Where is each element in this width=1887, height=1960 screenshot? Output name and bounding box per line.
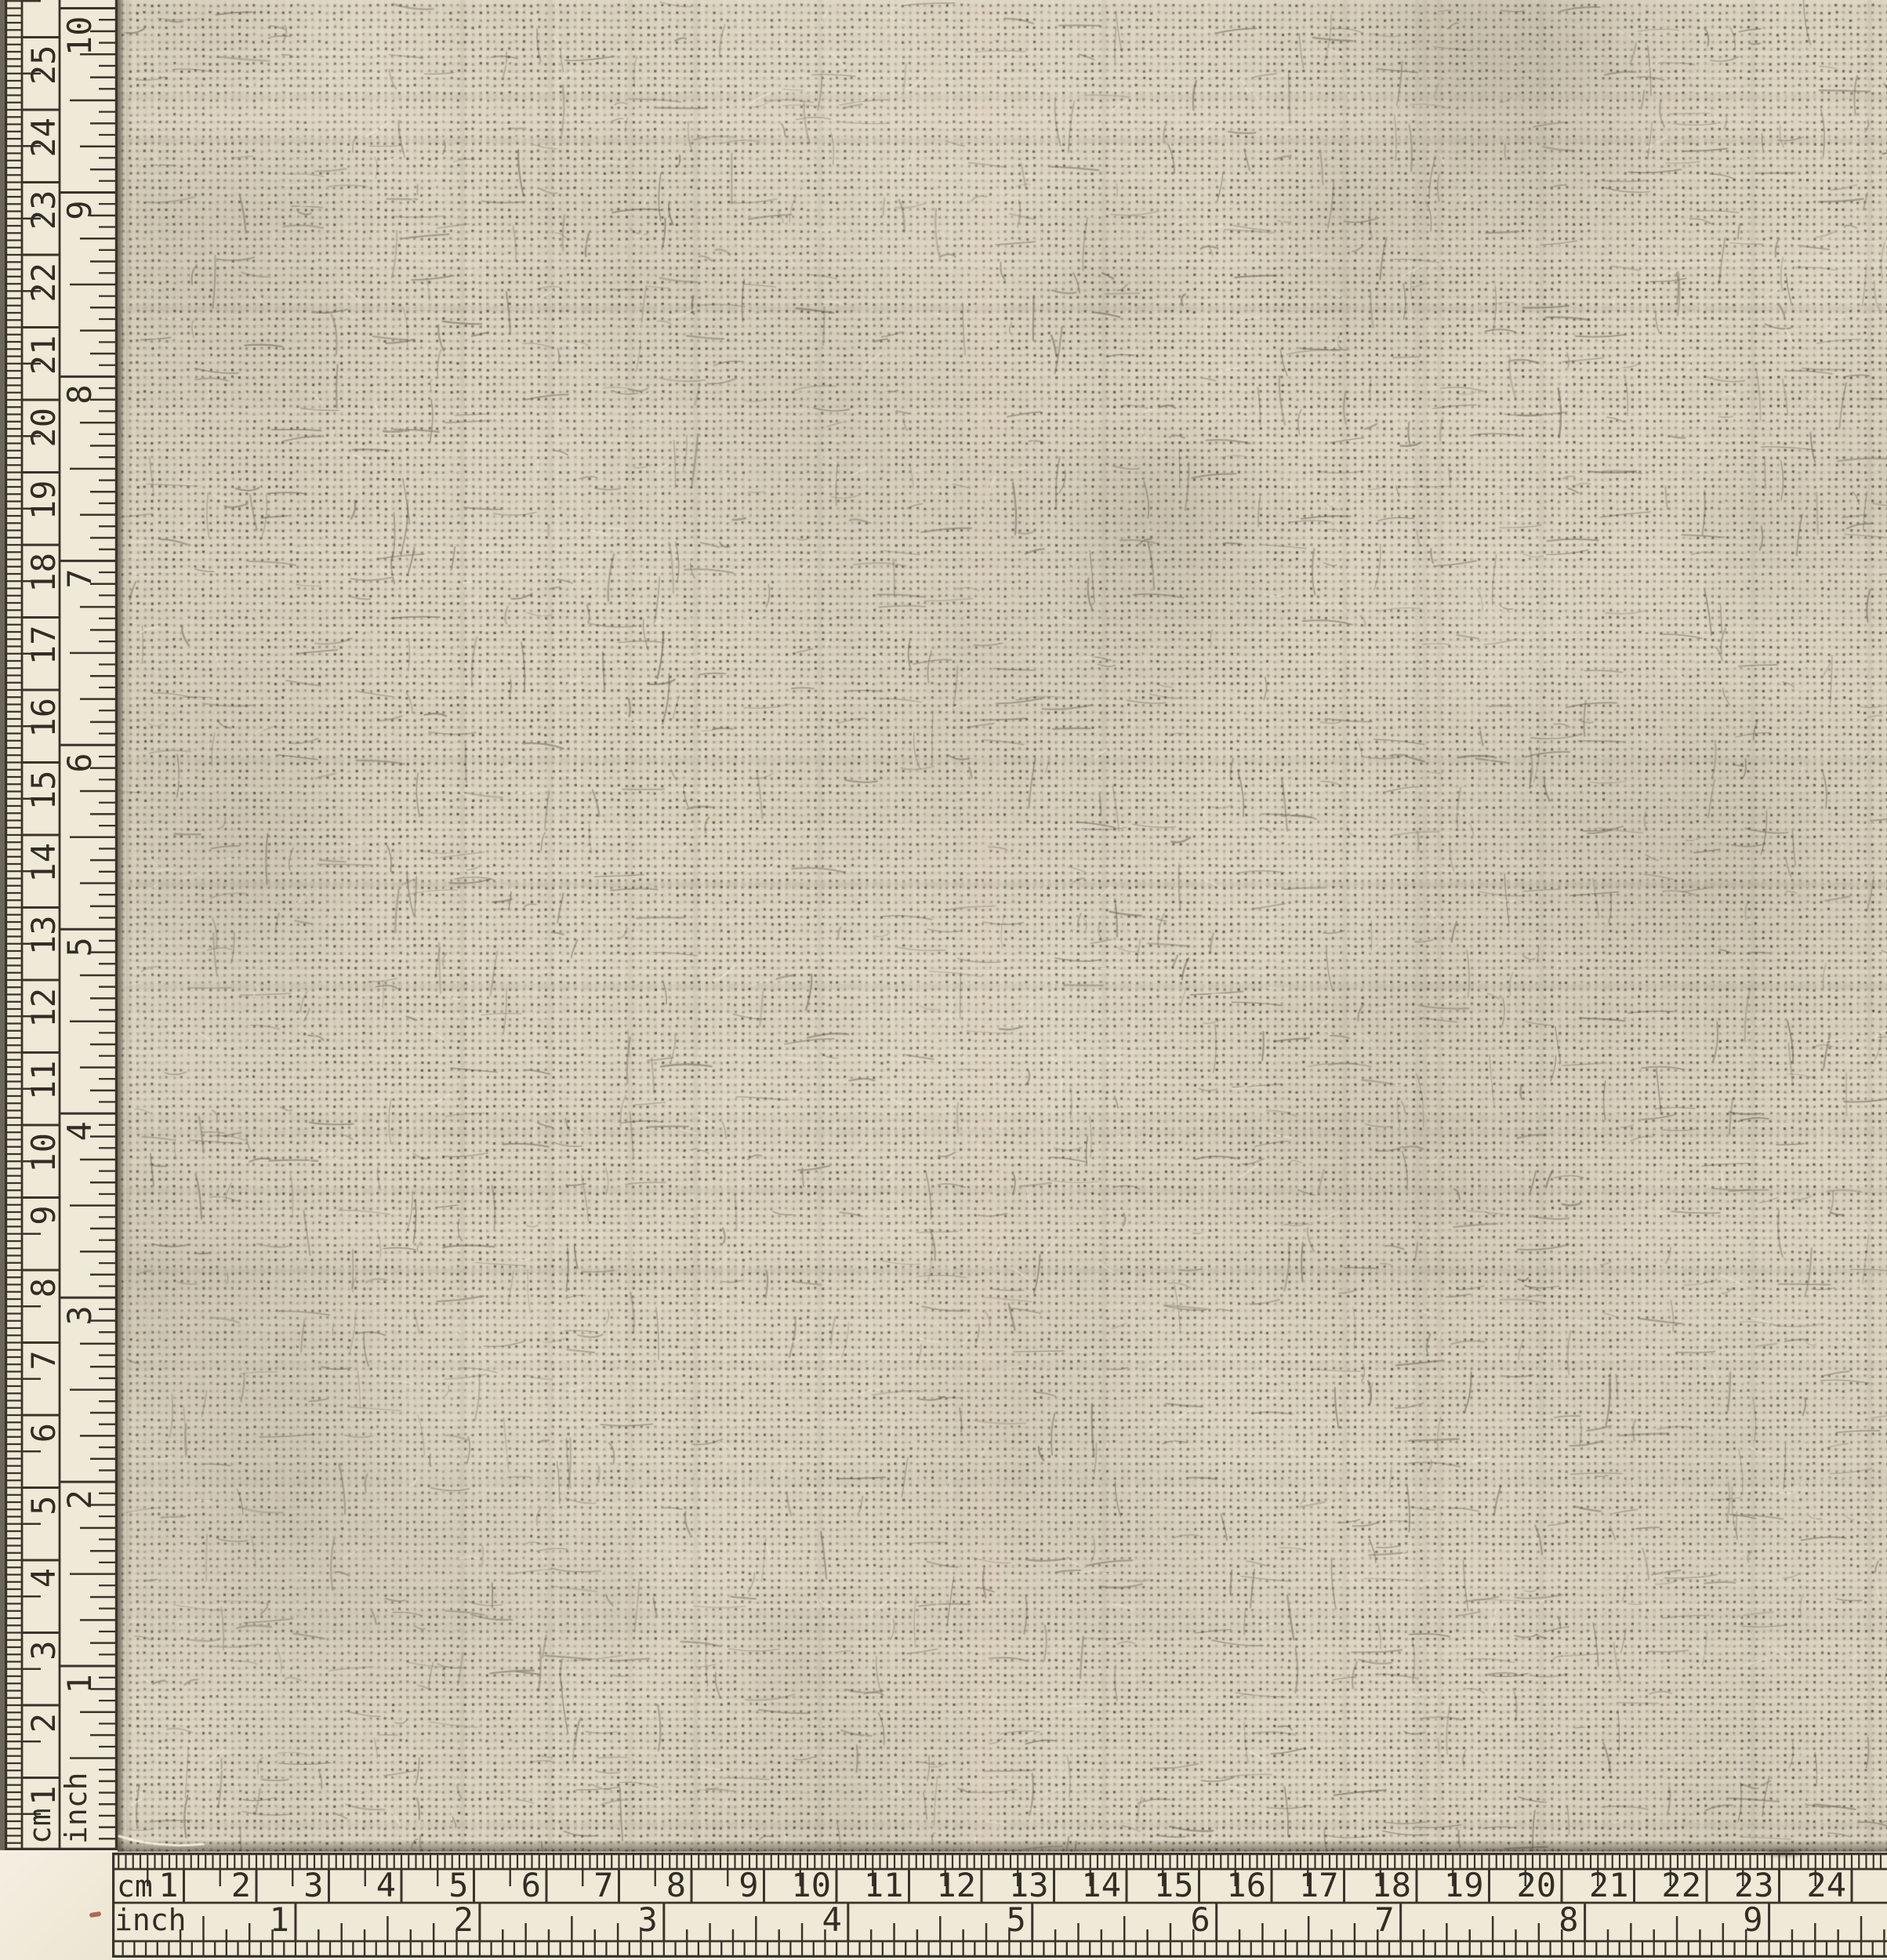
bottom-ruler-inch-number: 5 <box>1006 1900 1025 1939</box>
fabric-fray-smudge <box>1762 1847 1806 1859</box>
bottom-ruler-cm-number: 6 <box>521 1866 541 1904</box>
left-ruler-cm-number: 9 <box>24 1206 63 1225</box>
left-ruler-inch-number: 1 <box>60 1674 99 1693</box>
bottom-ruler-cm-number: 19 <box>1444 1866 1484 1904</box>
bottom-ruler-cm-number: 17 <box>1299 1866 1339 1904</box>
left-ruler-cm-number: 24 <box>24 118 63 158</box>
left-ruler-inch-number: 4 <box>60 1121 99 1141</box>
left-ruler-inch-number: 8 <box>60 384 99 404</box>
left-ruler-cm-number: 5 <box>24 1496 63 1515</box>
left-ruler-inch-number: 9 <box>60 200 99 220</box>
left-ruler-cm-number: 23 <box>24 191 63 230</box>
left-ruler-cm-label: cm <box>23 1808 57 1844</box>
left-ruler-cm-number: 16 <box>24 698 63 738</box>
bottom-ruler-cm-number: 21 <box>1589 1866 1629 1904</box>
left-ruler-cm-number: 17 <box>24 626 63 666</box>
left-ruler-cm-number: 7 <box>24 1351 63 1370</box>
bottom-ruler-cm-number: 22 <box>1661 1866 1701 1904</box>
scan-page: 1234567891011121314151617181920212223242… <box>0 0 1887 1960</box>
bottom-ruler-cm-number: 14 <box>1081 1866 1121 1904</box>
left-ruler-cm-number: 8 <box>24 1278 63 1298</box>
bottom-ruler-cm-label: cm <box>117 1869 153 1904</box>
left-ruler-cm-number: 21 <box>24 336 63 376</box>
bottom-ruler: 1234567891011121314151617181920212223241… <box>112 1853 1887 1958</box>
bottom-ruler-cm-number: 24 <box>1806 1866 1846 1904</box>
bottom-ruler-inch-number: 9 <box>1743 1900 1762 1939</box>
bottom-ruler-cm-number: 5 <box>448 1866 468 1904</box>
left-ruler-inch-number: 7 <box>60 568 99 588</box>
bottom-ruler-cm-number: 9 <box>738 1866 758 1904</box>
paper-corner <box>0 1852 112 1960</box>
left-ruler-cm-number: 12 <box>24 988 63 1028</box>
bottom-ruler-cm-number: 15 <box>1154 1866 1194 1904</box>
bottom-ruler-cm-number: 3 <box>303 1866 323 1904</box>
left-ruler-cm-number: 6 <box>24 1423 63 1443</box>
bottom-ruler-cm-number: 16 <box>1226 1866 1266 1904</box>
bottom-ruler-inch-number: 2 <box>454 1900 474 1939</box>
bottom-ruler-cm-number: 23 <box>1734 1866 1774 1904</box>
left-ruler-inch-number: 5 <box>60 937 99 956</box>
left-ruler-cm-number: 14 <box>24 843 63 883</box>
bottom-ruler-inch-number: 6 <box>1190 1900 1210 1939</box>
bottom-ruler-inch-number: 4 <box>822 1900 842 1939</box>
left-ruler-cm-number: 2 <box>24 1713 63 1733</box>
left-ruler-cm-number: 25 <box>24 45 63 85</box>
fabric-sample <box>118 0 1887 1852</box>
scan-edge-strip <box>0 0 5 1850</box>
bottom-ruler-cm-number: 8 <box>666 1866 686 1904</box>
left-ruler-cm-number: 13 <box>24 916 63 956</box>
left-ruler-cm-number: 4 <box>24 1568 63 1588</box>
bottom-ruler-cm-number: 2 <box>231 1866 251 1904</box>
bottom-ruler-cm-number: 1 <box>158 1866 178 1904</box>
left-ruler-cm-number: 15 <box>24 771 63 811</box>
bottom-ruler-cm-number: 11 <box>864 1866 904 1904</box>
bottom-ruler-inch-number: 1 <box>270 1900 289 1939</box>
left-ruler-inch-number: 6 <box>60 753 99 772</box>
left-ruler-cm-number: 3 <box>24 1641 63 1661</box>
left-ruler-inch-label: inch <box>59 1772 93 1844</box>
bottom-ruler-inch-number: 8 <box>1559 1900 1578 1939</box>
left-ruler-cm-number: 18 <box>24 553 63 593</box>
left-ruler-inch-number: 3 <box>60 1305 99 1325</box>
bottom-ruler-cm-number: 4 <box>376 1866 396 1904</box>
left-ruler-cm-number: 20 <box>24 408 63 448</box>
left-ruler-cm-number: 22 <box>24 263 63 303</box>
bottom-ruler-cm-number: 18 <box>1371 1866 1411 1904</box>
bottom-ruler-inch-label: inch <box>114 1903 187 1937</box>
bottom-ruler-cm-number: 13 <box>1009 1866 1049 1904</box>
left-ruler-cm-number: 11 <box>24 1061 63 1101</box>
bottom-ruler-cm-number: 10 <box>791 1866 831 1904</box>
left-ruler-cm-number: 10 <box>24 1133 63 1173</box>
left-ruler-inch-number: 2 <box>60 1490 99 1509</box>
bottom-ruler-cm-number: 7 <box>593 1866 613 1904</box>
bottom-ruler-cm-number: 12 <box>936 1866 976 1904</box>
left-ruler-cm-number: 1 <box>24 1786 63 1806</box>
left-ruler-inch-number: 10 <box>60 16 99 56</box>
bottom-ruler-inch-number: 3 <box>638 1900 658 1939</box>
left-ruler: 1234567891011121314151617181920212223242… <box>0 0 118 1850</box>
bottom-ruler-cm-number: 20 <box>1516 1866 1556 1904</box>
left-ruler-cm-number: 19 <box>24 481 63 521</box>
left-ruler-paper <box>5 0 118 1849</box>
bottom-ruler-inch-number: 7 <box>1374 1900 1394 1939</box>
bottom-ruler-paper <box>112 1853 1887 1958</box>
